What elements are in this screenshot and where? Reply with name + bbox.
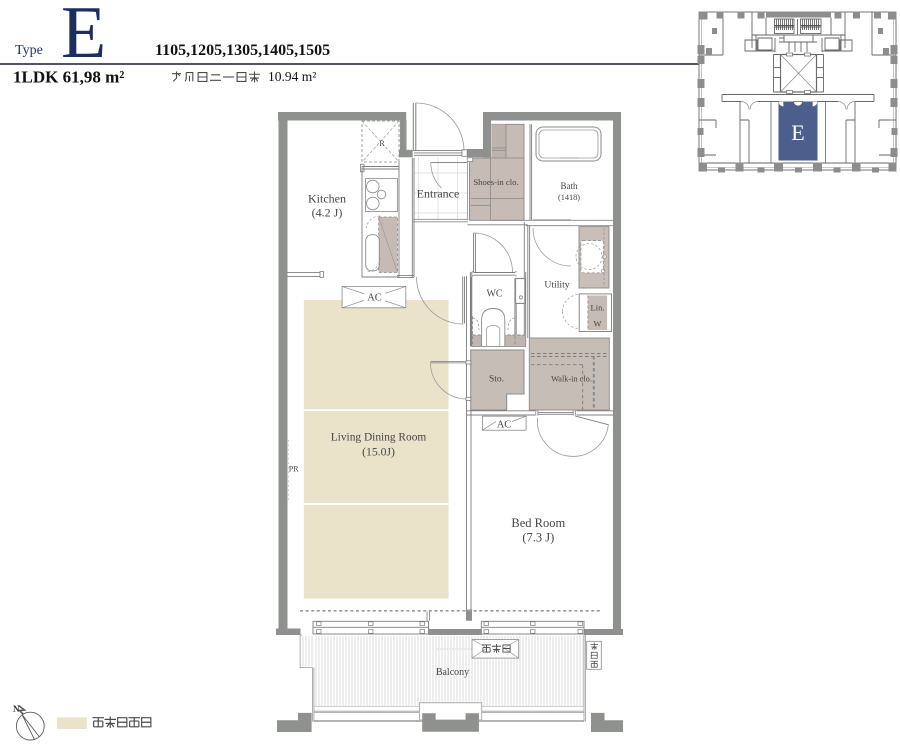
svg-text:1LDK 61,98 m²: 1LDK 61,98 m² <box>13 68 124 87</box>
svg-text:Entrance: Entrance <box>417 187 460 201</box>
svg-text:(1418): (1418) <box>558 193 580 202</box>
svg-text:10.94 m²: 10.94 m² <box>268 69 316 84</box>
svg-text:Balcony: Balcony <box>436 667 469 678</box>
svg-text:(7.3 J): (7.3 J) <box>522 531 554 545</box>
svg-text:Walk-in clo.: Walk-in clo. <box>551 375 592 384</box>
svg-text:PR: PR <box>289 465 299 474</box>
svg-text:Type: Type <box>15 43 43 58</box>
svg-text:Lin.: Lin. <box>591 303 605 313</box>
svg-text:(15.0J): (15.0J) <box>362 446 395 459</box>
svg-text:E: E <box>61 0 106 74</box>
svg-text:Kitchen: Kitchen <box>308 192 346 206</box>
svg-text:Bath: Bath <box>561 181 578 191</box>
svg-text:AC: AC <box>497 420 512 431</box>
svg-text:Shoes-in clo.: Shoes-in clo. <box>473 177 518 187</box>
svg-text:Bed Room: Bed Room <box>511 516 565 530</box>
svg-text:W: W <box>593 319 601 329</box>
svg-text:1105,1205,1305,1405,1505: 1105,1205,1305,1405,1505 <box>155 42 330 59</box>
svg-text:R: R <box>379 139 385 148</box>
svg-text:Sto.: Sto. <box>489 375 504 385</box>
svg-text:Utility: Utility <box>544 280 569 291</box>
svg-text:AC: AC <box>367 293 382 304</box>
svg-text:WC: WC <box>486 289 502 300</box>
svg-text:N: N <box>13 704 20 714</box>
svg-text:Living Dining Room: Living Dining Room <box>331 432 427 444</box>
svg-text:(4.2 J): (4.2 J) <box>312 206 343 220</box>
svg-text:E: E <box>791 120 804 145</box>
